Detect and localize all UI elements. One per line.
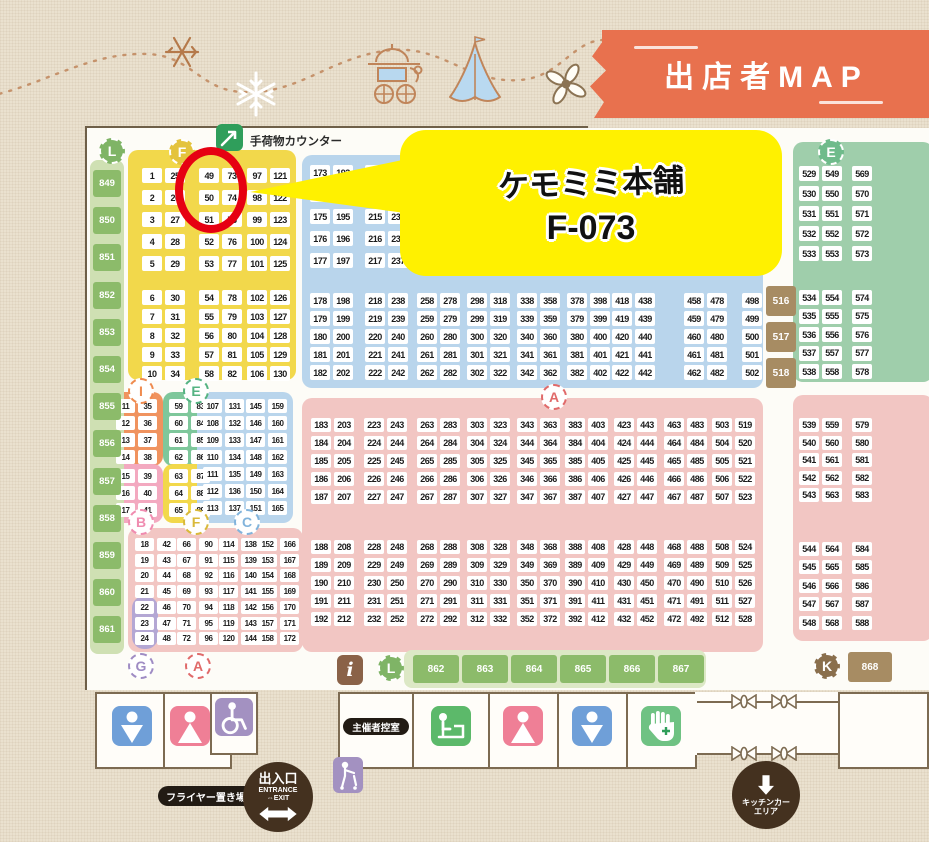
- booth-348: 348: [517, 540, 537, 554]
- booth-422: 422: [612, 365, 632, 380]
- booth-245: 245: [387, 454, 407, 468]
- down-arrow-icon: [758, 774, 774, 796]
- area-516: 516: [766, 286, 796, 316]
- booth-227: 227: [364, 490, 384, 504]
- booth-468: 468: [664, 540, 684, 554]
- booth-157: 157: [258, 617, 277, 630]
- dashed-swirl: [0, 40, 602, 98]
- booth-243: 243: [387, 418, 407, 432]
- booth-241: 241: [388, 347, 408, 362]
- badge-e-right: E: [818, 139, 844, 165]
- booth-349: 349: [517, 558, 537, 572]
- booth-421: 421: [612, 347, 632, 362]
- area-853: 853: [93, 319, 121, 346]
- booth-361: 361: [540, 347, 560, 362]
- banner-dash: [634, 46, 698, 49]
- booth-552: 552: [822, 226, 842, 241]
- booth-205: 205: [334, 454, 354, 468]
- booth-482: 482: [707, 365, 727, 380]
- badge-f-mid: F: [183, 509, 209, 535]
- booth-401: 401: [590, 347, 610, 362]
- booth-463: 463: [664, 418, 684, 432]
- booth-511: 511: [712, 594, 732, 608]
- booth-106: 106: [247, 366, 267, 381]
- booth-585: 585: [852, 560, 872, 574]
- booth-5: 5: [142, 256, 162, 271]
- booth-3: 3: [142, 212, 162, 227]
- booth-62: 62: [169, 450, 188, 464]
- booth-550: 550: [822, 186, 842, 201]
- booth-312: 312: [467, 612, 487, 626]
- booth-524: 524: [735, 540, 755, 554]
- booth-219: 219: [365, 311, 385, 326]
- booth-267: 267: [417, 490, 437, 504]
- booth-399: 399: [590, 311, 610, 326]
- booth-449: 449: [637, 558, 657, 572]
- booth-470: 470: [664, 576, 684, 590]
- organizer-room-label: 主催者控室: [343, 718, 409, 735]
- booth-189: 189: [311, 558, 331, 572]
- booth-523: 523: [735, 490, 755, 504]
- booth-288: 288: [440, 540, 460, 554]
- booth-162: 162: [268, 450, 287, 464]
- booth-384: 384: [565, 436, 585, 450]
- area-857: 857: [93, 468, 121, 495]
- rope-line: [697, 753, 838, 755]
- booth-101: 101: [247, 256, 267, 271]
- booth-323: 323: [490, 418, 510, 432]
- booth-134: 134: [225, 450, 244, 464]
- booth-326: 326: [490, 472, 510, 486]
- booth-182: 182: [310, 365, 330, 380]
- flower-icon: [536, 54, 596, 114]
- booth-207: 207: [334, 490, 354, 504]
- booth-532: 532: [799, 226, 819, 241]
- booth-309: 309: [467, 558, 487, 572]
- booth-115: 115: [219, 554, 238, 567]
- booth-340: 340: [517, 329, 537, 344]
- booth-460: 460: [684, 329, 704, 344]
- booth-66: 66: [177, 538, 196, 551]
- booth-289: 289: [440, 558, 460, 572]
- booth-39: 39: [138, 469, 157, 483]
- booth-345: 345: [517, 454, 537, 468]
- booth-185: 185: [311, 454, 331, 468]
- area-868: 868: [848, 652, 892, 682]
- booth-555: 555: [822, 309, 842, 324]
- booth-209: 209: [334, 558, 354, 572]
- kitchen-car-label: キッチンカー: [742, 798, 790, 807]
- booth-178: 178: [310, 293, 330, 308]
- booth-109: 109: [203, 433, 222, 447]
- booth-526: 526: [735, 576, 755, 590]
- booth-190: 190: [311, 576, 331, 590]
- booth-269: 269: [417, 558, 437, 572]
- booth-530: 530: [799, 186, 819, 201]
- booth-263: 263: [417, 418, 437, 432]
- booth-398: 398: [590, 293, 610, 308]
- booth-117: 117: [219, 585, 238, 598]
- booth-131: 131: [225, 399, 244, 413]
- booth-440: 440: [635, 329, 655, 344]
- booth-480: 480: [707, 329, 727, 344]
- booth-80: 80: [222, 328, 242, 343]
- booth-565: 565: [822, 560, 842, 574]
- booth-266: 266: [417, 472, 437, 486]
- barrier-icon: [730, 694, 758, 709]
- booth-38: 38: [138, 450, 157, 464]
- booth-61: 61: [169, 433, 188, 447]
- booth-501: 501: [742, 347, 762, 362]
- booth-390: 390: [565, 576, 585, 590]
- entrance-jp-label: 出入口: [258, 772, 297, 787]
- booth-47: 47: [157, 617, 176, 630]
- booth-503: 503: [712, 418, 732, 432]
- booth-389: 389: [565, 558, 585, 572]
- booth-324: 324: [490, 436, 510, 450]
- booth-55: 55: [199, 309, 219, 324]
- male-toilet-icon: [112, 706, 152, 746]
- booth-544: 544: [799, 542, 819, 556]
- booth-40: 40: [138, 486, 157, 500]
- booth-226: 226: [364, 472, 384, 486]
- booth-404: 404: [588, 436, 608, 450]
- banner-dash: [819, 101, 883, 104]
- booth-42: 42: [157, 538, 176, 551]
- booth-445: 445: [637, 454, 657, 468]
- booth-301: 301: [467, 347, 487, 362]
- booth-54: 54: [199, 290, 219, 305]
- booth-221: 221: [365, 347, 385, 362]
- booth-569: 569: [852, 166, 872, 181]
- booth-392: 392: [565, 612, 585, 626]
- booth-431: 431: [614, 594, 634, 608]
- booth-409: 409: [588, 558, 608, 572]
- booth-444: 444: [637, 436, 657, 450]
- booth-220: 220: [365, 329, 385, 344]
- booth-298: 298: [467, 293, 487, 308]
- booth-203: 203: [334, 418, 354, 432]
- booth-135: 135: [225, 467, 244, 481]
- booth-145: 145: [246, 399, 265, 413]
- booth-430: 430: [614, 576, 634, 590]
- booth-239: 239: [388, 311, 408, 326]
- booth-583: 583: [852, 488, 872, 502]
- booth-96: 96: [199, 632, 218, 645]
- area-518: 518: [766, 358, 796, 388]
- booth-268: 268: [417, 540, 437, 554]
- area-864: 864: [511, 655, 557, 683]
- booth-202: 202: [333, 365, 353, 380]
- booth-500: 500: [742, 329, 762, 344]
- booth-428: 428: [614, 540, 634, 554]
- booth-367: 367: [540, 490, 560, 504]
- booth-563: 563: [822, 488, 842, 502]
- booth-448: 448: [637, 540, 657, 554]
- booth-180: 180: [310, 329, 330, 344]
- booth-423: 423: [614, 418, 634, 432]
- booth-578: 578: [852, 364, 872, 379]
- booth-208: 208: [334, 540, 354, 554]
- entrance-exit-sign: 出入口 ENTRANCE ⇔EXIT: [243, 762, 313, 832]
- booth-170: 170: [280, 601, 299, 614]
- male-toilet-icon: [572, 706, 612, 746]
- booth-225: 225: [364, 454, 384, 468]
- booth-338: 338: [517, 293, 537, 308]
- booth-69: 69: [177, 585, 196, 598]
- booth-168: 168: [280, 569, 299, 582]
- badge-c: C: [234, 509, 260, 535]
- booth-307: 307: [467, 490, 487, 504]
- booth-125: 125: [270, 256, 290, 271]
- booth-186: 186: [311, 472, 331, 486]
- booth-586: 586: [852, 579, 872, 593]
- booth-165: 165: [268, 501, 287, 515]
- booth-462: 462: [684, 365, 704, 380]
- booth-22: 22: [135, 601, 154, 614]
- booth-2: 2: [142, 190, 162, 205]
- booth-238: 238: [388, 293, 408, 308]
- booth-429: 429: [614, 558, 634, 572]
- booth-465: 465: [664, 454, 684, 468]
- booth-419: 419: [612, 311, 632, 326]
- booth-60: 60: [169, 416, 188, 430]
- booth-488: 488: [687, 540, 707, 554]
- booth-44: 44: [157, 569, 176, 582]
- booth-385: 385: [565, 454, 585, 468]
- area-867: 867: [658, 655, 704, 683]
- booth-406: 406: [588, 472, 608, 486]
- booth-484: 484: [687, 436, 707, 450]
- booth-91: 91: [199, 554, 218, 567]
- booth-557: 557: [822, 346, 842, 361]
- booth-230: 230: [364, 576, 384, 590]
- area-850: 850: [93, 207, 121, 234]
- booth-446: 446: [637, 472, 657, 486]
- booth-587: 587: [852, 597, 872, 611]
- booth-90: 90: [199, 538, 218, 551]
- booth-576: 576: [852, 327, 872, 342]
- booth-148: 148: [246, 450, 265, 464]
- booth-472: 472: [664, 612, 684, 626]
- booth-579: 579: [852, 418, 872, 432]
- booth-571: 571: [852, 206, 872, 221]
- booth-228: 228: [364, 540, 384, 554]
- booth-418: 418: [612, 293, 632, 308]
- booth-486: 486: [687, 472, 707, 486]
- booth-163: 163: [268, 467, 287, 481]
- booth-541: 541: [799, 453, 819, 467]
- booth-251: 251: [387, 594, 407, 608]
- booth-36: 36: [138, 416, 157, 430]
- booth-130: 130: [270, 366, 290, 381]
- booth-177: 177: [310, 253, 330, 268]
- booth-21: 21: [135, 585, 154, 598]
- booth-259: 259: [417, 311, 437, 326]
- booth-498: 498: [742, 293, 762, 308]
- booth-103: 103: [247, 309, 267, 324]
- booth-53: 53: [199, 256, 219, 271]
- booth-212: 212: [334, 612, 354, 626]
- booth-152: 152: [258, 538, 277, 551]
- booth-45: 45: [157, 585, 176, 598]
- booth-490: 490: [687, 576, 707, 590]
- booth-506: 506: [712, 472, 732, 486]
- booth-510: 510: [712, 576, 732, 590]
- booth-179: 179: [310, 311, 330, 326]
- booth-285: 285: [440, 454, 460, 468]
- booth-492: 492: [687, 612, 707, 626]
- page-title: 出店者MAP: [648, 52, 869, 96]
- booth-303: 303: [467, 418, 487, 432]
- booth-169: 169: [280, 585, 299, 598]
- booth-320: 320: [490, 329, 510, 344]
- booth-325: 325: [490, 454, 510, 468]
- booth-147: 147: [246, 433, 265, 447]
- booth-271: 271: [417, 594, 437, 608]
- booth-572: 572: [852, 226, 872, 241]
- booth-420: 420: [612, 329, 632, 344]
- booth-483: 483: [687, 418, 707, 432]
- booth-43: 43: [157, 554, 176, 567]
- booth-350: 350: [517, 576, 537, 590]
- area-865: 865: [560, 655, 606, 683]
- booth-581: 581: [852, 453, 872, 467]
- divider-line: [163, 692, 165, 769]
- booth-57: 57: [199, 347, 219, 362]
- booth-224: 224: [364, 436, 384, 450]
- booth-520: 520: [735, 436, 755, 450]
- booth-521: 521: [735, 454, 755, 468]
- tent-icon: [450, 37, 500, 101]
- booth-327: 327: [490, 490, 510, 504]
- area-851: 851: [93, 244, 121, 271]
- booth-386: 386: [565, 472, 585, 486]
- area-863: 863: [462, 655, 508, 683]
- booth-450: 450: [637, 576, 657, 590]
- map-border-left: [85, 126, 87, 690]
- booth-262: 262: [417, 365, 437, 380]
- booth-302: 302: [467, 365, 487, 380]
- booth-304: 304: [467, 436, 487, 450]
- booth-568: 568: [822, 616, 842, 630]
- booth-116: 116: [219, 569, 238, 582]
- booth-32: 32: [165, 328, 185, 343]
- booth-204: 204: [334, 436, 354, 450]
- booth-379: 379: [567, 311, 587, 326]
- booth-310: 310: [467, 576, 487, 590]
- booth-18: 18: [135, 538, 154, 551]
- area-855: 855: [93, 393, 121, 420]
- booth-410: 410: [588, 576, 608, 590]
- booth-52: 52: [199, 234, 219, 249]
- booth-265: 265: [417, 454, 437, 468]
- booth-260: 260: [417, 329, 437, 344]
- booth-229: 229: [364, 558, 384, 572]
- escalator-icon: [216, 124, 243, 151]
- booth-359: 359: [540, 311, 560, 326]
- snowflake-icon: [238, 73, 274, 115]
- booth-458: 458: [684, 293, 704, 308]
- booth-23: 23: [135, 617, 154, 630]
- booth-270: 270: [417, 576, 437, 590]
- booth-112: 112: [203, 484, 222, 498]
- booth-76: 76: [222, 234, 242, 249]
- booth-528: 528: [735, 612, 755, 626]
- booth-447: 447: [637, 490, 657, 504]
- booth-412: 412: [588, 612, 608, 626]
- booth-529: 529: [799, 166, 819, 181]
- nursing-room-icon: [431, 706, 471, 746]
- area-866: 866: [609, 655, 655, 683]
- booth-102: 102: [247, 290, 267, 305]
- booth-70: 70: [177, 601, 196, 614]
- booth-499: 499: [742, 311, 762, 326]
- area-862: 862: [413, 655, 459, 683]
- badge-l-top: L: [99, 138, 125, 164]
- booth-95: 95: [199, 617, 218, 630]
- booth-351: 351: [517, 594, 537, 608]
- booth-352: 352: [517, 612, 537, 626]
- booth-570: 570: [852, 186, 872, 201]
- badge-b: B: [128, 509, 154, 535]
- booth-108: 108: [203, 416, 222, 430]
- booth-300: 300: [467, 329, 487, 344]
- booth-94: 94: [199, 601, 218, 614]
- wheelchair-icon: [215, 697, 253, 737]
- booth-284: 284: [440, 436, 460, 450]
- booth-67: 67: [177, 554, 196, 567]
- booth-93: 93: [199, 585, 218, 598]
- booth-551: 551: [822, 206, 842, 221]
- booth-400: 400: [590, 329, 610, 344]
- booth-388: 388: [565, 540, 585, 554]
- barrier-icon: [770, 694, 798, 709]
- booth-258: 258: [417, 293, 437, 308]
- booth-479: 479: [707, 311, 727, 326]
- booth-487: 487: [687, 490, 707, 504]
- booth-485: 485: [687, 454, 707, 468]
- booth-252: 252: [387, 612, 407, 626]
- booth-330: 330: [490, 576, 510, 590]
- booth-471: 471: [664, 594, 684, 608]
- barrier-icon: [770, 746, 798, 761]
- booth-362: 362: [540, 365, 560, 380]
- booth-136: 136: [225, 484, 244, 498]
- booth-554: 554: [822, 290, 842, 305]
- booth-79: 79: [222, 309, 242, 324]
- booth-110: 110: [203, 450, 222, 464]
- booth-342: 342: [517, 365, 537, 380]
- booth-339: 339: [517, 311, 537, 326]
- booth-56: 56: [199, 328, 219, 343]
- booth-129: 129: [270, 347, 290, 362]
- booth-291: 291: [440, 594, 460, 608]
- booth-37: 37: [138, 433, 157, 447]
- booth-119: 119: [219, 617, 238, 630]
- booth-29: 29: [165, 256, 185, 271]
- booth-519: 519: [735, 418, 755, 432]
- booth-201: 201: [333, 347, 353, 362]
- booth-425: 425: [614, 454, 634, 468]
- first-aid-icon: [641, 706, 681, 746]
- area-859: 859: [93, 542, 121, 569]
- booth-478: 478: [707, 293, 727, 308]
- booth-150: 150: [246, 484, 265, 498]
- booth-261: 261: [417, 347, 437, 362]
- booth-509: 509: [712, 558, 732, 572]
- booth-46: 46: [157, 601, 176, 614]
